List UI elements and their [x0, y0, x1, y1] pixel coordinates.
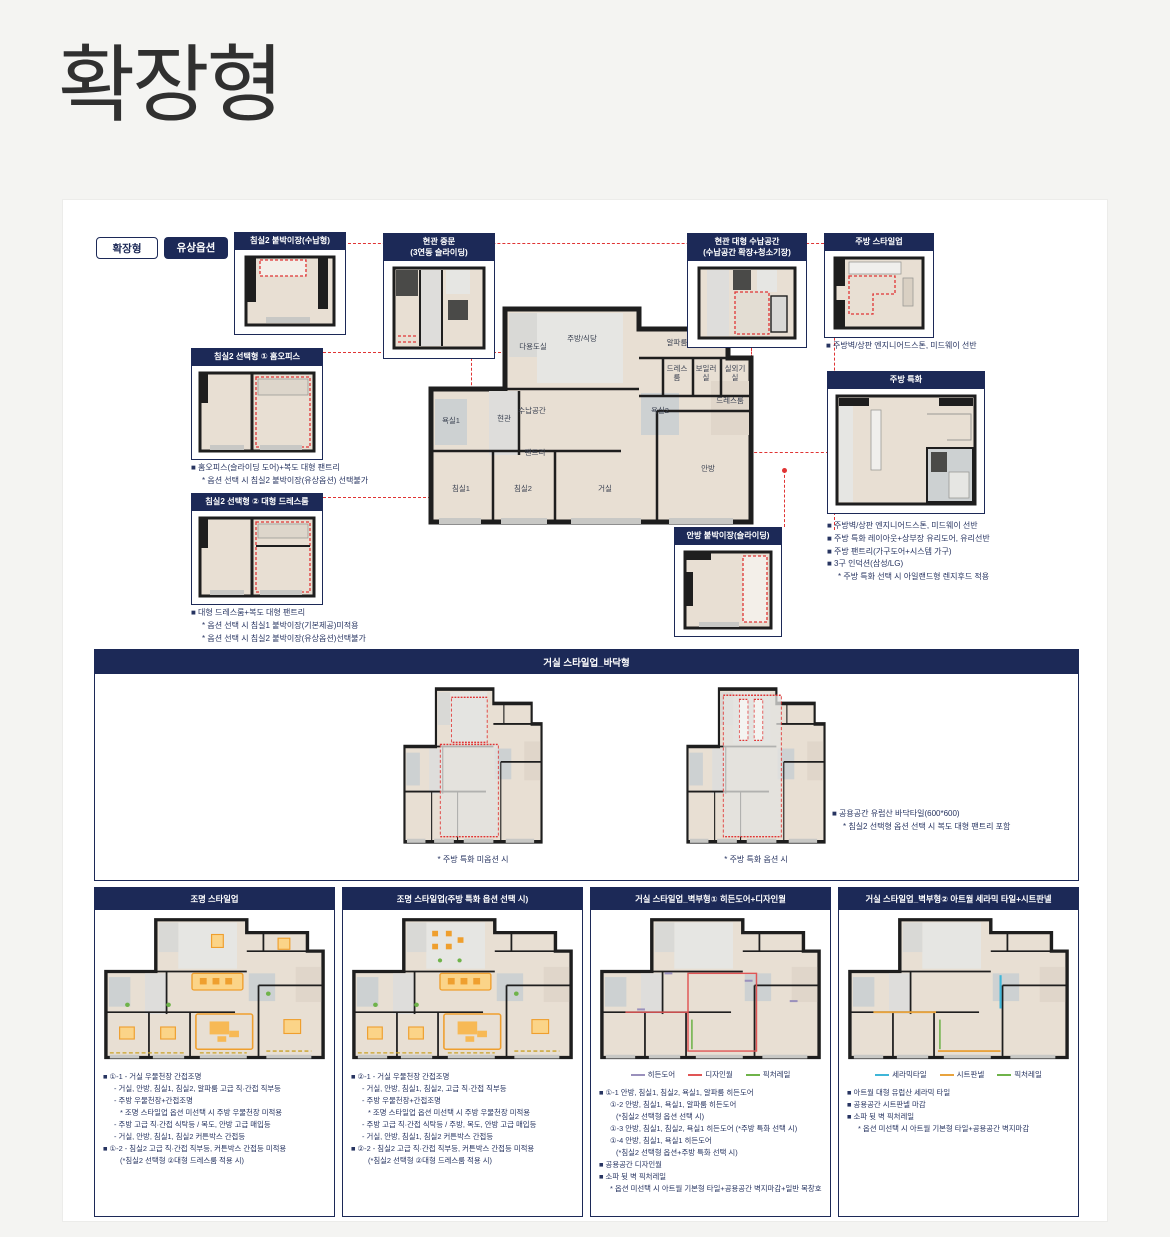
callout-kitchen-styleup: 주방 스타일업: [824, 233, 934, 338]
callout-title: 침실2 선택형 ① 홈오피스: [192, 349, 322, 366]
note-line: - 거실, 안방, 침실1, 침실2 커튼박스 간접등: [351, 1131, 574, 1143]
callout-entry-large-storage: 현관 대형 수납공간 (수납공간 확장+청소기장): [687, 233, 807, 348]
callout-notes: ■ 주방벽/상판 엔지니어드스톤, 미드웨이 선반: [826, 340, 1001, 353]
panel-notes: ■ 아트월 대형 유럽산 세라믹 타일 ■ 공용공간 시트판넬 마감 ■ 소파 …: [839, 1080, 1078, 1135]
note-line: ①-4 안방, 침실1, 욕실1 히든도어: [599, 1135, 822, 1147]
note-line: ①-3 안방, 침실1, 침실2, 욕실1 히든도어 (*주방 특화 선택 시): [599, 1123, 822, 1135]
floor-plan-thumbnail: [835, 394, 977, 506]
section-header: 거실 스타일업_바닥형: [95, 650, 1078, 674]
legend-item: 픽처레일: [746, 1069, 791, 1080]
callout-title: 현관 대형 수납공간 (수납공간 확장+청소기장): [688, 234, 806, 261]
callout-bed2-option2-dressroom: 침실2 선택형 ② 대형 드레스룸: [191, 493, 323, 605]
panel-header: 조명 스타일업: [95, 888, 334, 910]
note-line: ■ 공용공간 유럽산 바닥타일(600*600): [832, 808, 1072, 821]
note-line: ■ ①-2 - 침실2 고급 직·간접 직부등, 커튼박스 간접등 미적용: [103, 1143, 326, 1155]
note-line: - 거실, 안방, 침실1, 침실2, 알파룸 고급 직·간접 직부등: [103, 1083, 326, 1095]
floor-plan-thumbnail: [697, 266, 797, 340]
note-line: ■ 소파 뒷 벽 픽처레일: [847, 1111, 1070, 1123]
callout-title: 현관 중문 (3연동 슬라이딩): [384, 234, 494, 261]
legend-item: 세라믹타일: [875, 1069, 927, 1080]
callout-title: 침실2 붙박이장(수납형): [235, 233, 345, 250]
room-label-dress-top: 드레스룸: [664, 365, 690, 382]
floor-plan-graphic: [350, 916, 575, 1064]
floor-plan-thumbnail: [683, 550, 773, 630]
room-label-bath1: 욕실1: [435, 417, 467, 426]
note-line: ■ 홈오피스(슬라이딩 도어)+복도 대형 팬트리: [191, 462, 441, 475]
floor-plan-thumbnail: [198, 371, 316, 453]
note-line: ■ 주방 특화 레이아웃+상부장 유리도어, 유리선반: [827, 533, 1087, 546]
main-panel: 확장형 유상옵션 침실2 붙박이장(수납형): [62, 199, 1108, 1222]
floor-plan-no-option: [402, 685, 544, 854]
note-line: * 옵션 미선택 시 아트월 기본형 타일+공용공간 벽지마감: [847, 1123, 1070, 1135]
floor-plan-with-option: [685, 685, 827, 854]
panel-header: 거실 스타일업_벽부형① 히든도어+디자인월: [591, 888, 830, 910]
note-line: ■ 아트월 대형 유럽산 세라믹 타일: [847, 1087, 1070, 1099]
note-line: ■ ②-2 - 침실2 고급 직·간접 직부등, 커튼박스 간접등 미적용: [351, 1143, 574, 1155]
legend-label: 히든도어: [648, 1070, 676, 1079]
floor-plan-thumbnail: [244, 255, 336, 327]
badge-extended-type: 확장형: [96, 237, 158, 259]
panel-lighting-styleup-kitchen-special: 조명 스타일업(주방 특화 옵션 선택 시): [342, 887, 583, 1217]
room-label-pantry: 팬트리: [517, 449, 553, 458]
callout-title-line1: 현관 중문: [385, 237, 493, 248]
note-line: (*침실2 선택형 옵션+주방 특화 선택 시): [599, 1147, 822, 1159]
note-line: ■ ②-1 - 거실 우물천장 간접조명: [351, 1071, 574, 1083]
room-label-living: 거실: [580, 485, 630, 494]
note-line: - 주방 고급 직·간접 식탁등 / 복도, 안방 고급 매입등: [103, 1119, 326, 1131]
legend-label: 픽처레일: [763, 1070, 791, 1079]
note-line: * 옵션 선택 시 침실2 붙박이장(유상옵션) 선택불가: [191, 475, 441, 488]
legend-swatch-picture-rail: [746, 1074, 760, 1076]
note-line: * 주방 특화 선택 시 아일랜드형 렌지후드 적용: [827, 571, 1087, 584]
note-line: ■ 공용공간 디자인월: [599, 1159, 822, 1171]
callout-title: 안방 붙박이장(슬라이딩): [675, 528, 781, 545]
callout-master-builtin-closet: 안방 붙박이장(슬라이딩): [674, 527, 782, 637]
note-line: ■ 공용공간 시트판넬 마감: [847, 1099, 1070, 1111]
panel-wall-type1-hidden-door-designwall: 거실 스타일업_벽부형① 히든도어+디자인월 히든도어: [590, 887, 831, 1217]
legend-swatch-hidden-door: [631, 1074, 645, 1076]
note-line: - 주방 우물천장+간접조명: [103, 1095, 326, 1107]
legend-item: 디자인월: [688, 1069, 733, 1080]
room-label-storage: 수납공간: [517, 407, 547, 416]
panel-lighting-styleup: 조명 스타일업: [94, 887, 335, 1217]
legend-label: 세라믹타일: [892, 1070, 927, 1079]
note-line: (*침실2 선택형 ②대형 드레스룸 적용 시): [351, 1155, 574, 1167]
page-title: 확장형: [58, 18, 281, 139]
note-line: * 옵션 선택 시 침실2 붙박이장(유상옵션)선택불가: [191, 633, 451, 646]
brochure-page: 확장형: [0, 0, 1170, 1237]
section-living-floor-styleup: 거실 스타일업_바닥형 * 주방 특화 미옵션 시: [94, 649, 1079, 881]
callout-title-line2: (수납공간 확장+청소기장): [689, 248, 805, 259]
panel-notes: ■ ①-1 - 거실 우물천장 간접조명 - 거실, 안방, 침실1, 침실2,…: [95, 1064, 334, 1167]
callout-title-line1: 현관 대형 수납공간: [689, 237, 805, 248]
note-line: - 거실, 안방, 침실1, 침실2, 고급 직·간접 직부등: [351, 1083, 574, 1095]
callout-title: 침실2 선택형 ② 대형 드레스룸: [192, 494, 322, 511]
room-label-bed1: 침실1: [441, 485, 481, 494]
note-line: - 거실, 안방, 침실1, 침실2 커튼박스 간접등: [103, 1131, 326, 1143]
callout-notes: ■ 대형 드레스룸+복도 대형 팬트리 * 옵션 선택 시 침실1 붙박이장(기…: [191, 607, 451, 645]
callout-notes: ■ 주방벽/상판 엔지니어드스톤, 미드웨이 선반 ■ 주방 특화 레이아웃+상…: [827, 520, 1087, 584]
callout-title: 주방 특화: [828, 372, 984, 389]
note-line: ■ 주방벽/상판 엔지니어드스톤, 미드웨이 선반: [827, 520, 1087, 533]
legend-label: 디자인월: [705, 1070, 733, 1079]
room-label-boiler: 보일러실: [693, 365, 719, 382]
note-line: * 조명 스타일업 옵션 미선택 시 주방 우물천장 미적용: [351, 1107, 574, 1119]
room-label-bed2: 침실2: [503, 485, 543, 494]
note-line: - 주방 고급 직·간접 식탁등 / 주방, 복도, 안방 고급 매입등: [351, 1119, 574, 1131]
panel-header: 거실 스타일업_벽부형② 아트월 세라믹 타일+시트판넬: [839, 888, 1078, 910]
legend-swatch-sheet-panel: [940, 1074, 954, 1076]
note-line: ■ ①-1 - 거실 우물천장 간접조명: [103, 1071, 326, 1083]
note-line: ■ 소파 뒷 벽 픽처레일: [599, 1171, 822, 1183]
note-line: ■ 주방 팬트리(가구도어+시스템 가구): [827, 546, 1087, 559]
floor-plan-graphic: [685, 685, 827, 849]
legend-label: 픽처레일: [1014, 1070, 1042, 1079]
room-label-bath2: 욕실2: [643, 407, 677, 416]
floor-plan-graphic: [102, 916, 327, 1064]
callout-kitchen-special: 주방 특화: [827, 371, 985, 514]
panel-notes: ■ ①-1 안방, 침실1, 침실2, 욕실1, 알파룸 히든도어 ①-2 안방…: [591, 1080, 830, 1195]
legend-swatch-design-wall: [688, 1074, 702, 1076]
note-line: ①-2 안방, 침실1, 욕실1, 알파룸 히든도어: [599, 1099, 822, 1111]
note-line: * 침실2 선택형 옵션 선택 시 복도 대형 팬트리 포함: [832, 821, 1072, 834]
legend-item: 픽처레일: [997, 1069, 1042, 1080]
callout-notes: ■ 홈오피스(슬라이딩 도어)+복도 대형 팬트리 * 옵션 선택 시 침실2 …: [191, 462, 441, 488]
room-label-ac-room: 실외기실: [722, 365, 748, 382]
legend-label: 시트판넬: [957, 1070, 985, 1079]
note-line: ■ 주방벽/상판 엔지니어드스톤, 미드웨이 선반: [826, 340, 1001, 353]
floor-plan-thumbnail: [833, 256, 925, 330]
note-line: ■ 대형 드레스룸+복도 대형 팬트리: [191, 607, 451, 620]
floor-plan-graphic: [846, 916, 1071, 1064]
note-line: * 조명 스타일업 옵션 미선택 시 주방 우물천장 미적용: [103, 1107, 326, 1119]
note-line: ■ ①-1 안방, 침실1, 침실2, 욕실1, 알파룸 히든도어: [599, 1087, 822, 1099]
room-label-entry: 현관: [487, 415, 521, 424]
panel-notes: ■ ②-1 - 거실 우물천장 간접조명 - 거실, 안방, 침실1, 침실2,…: [343, 1064, 582, 1167]
callout-bed2-option1-homeoffice: 침실2 선택형 ① 홈오피스: [191, 348, 323, 460]
note-line: ■ 3구 인덕션(삼성/LG): [827, 558, 1087, 571]
note-line: (*침실2 선택형 옵션 선택 시): [599, 1111, 822, 1123]
floor-plan-graphic: [402, 685, 544, 849]
legend-item: 시트판넬: [940, 1069, 985, 1080]
callout-title-line2: (3연동 슬라이딩): [385, 248, 493, 259]
callout-bed2-builtin-closet: 침실2 붙박이장(수납형): [234, 232, 346, 335]
room-label-dress-right: 드레스룸: [715, 397, 745, 406]
floor-plan-thumbnail: [198, 516, 316, 598]
note-line: (*침실2 선택형 ②대형 드레스룸 적용 시): [103, 1155, 326, 1167]
panel-legend: 세라믹타일 시트판넬 픽처레일: [839, 1069, 1078, 1080]
floor-plan-graphic: [598, 916, 823, 1064]
legend-swatch-ceramic-tile: [875, 1074, 889, 1076]
room-label-utility: 다용도실: [503, 343, 563, 352]
note-line: * 옵션 미선택 시 아트월 기본형 타일+공용공간 벽지마감+일반 목창호: [599, 1183, 822, 1195]
plan-caption-right: * 주방 특화 옵션 시: [685, 854, 827, 865]
legend-item: 히든도어: [631, 1069, 676, 1080]
plan-caption-left: * 주방 특화 미옵션 시: [402, 854, 544, 865]
section-notes: ■ 공용공간 유럽산 바닥타일(600*600) * 침실2 선택형 옵션 선택…: [832, 808, 1072, 834]
note-line: - 주방 우물천장+간접조명: [351, 1095, 574, 1107]
note-line: * 옵션 선택 시 침실1 붙박이장(기본제공)미적용: [191, 620, 451, 633]
panel-legend: 히든도어 디자인월 픽처레일: [591, 1069, 830, 1080]
panel-header: 조명 스타일업(주방 특화 옵션 선택 시): [343, 888, 582, 910]
badge-paid-option: 유상옵션: [164, 237, 228, 259]
callout-title: 주방 스타일업: [825, 234, 933, 251]
room-label-kitchen: 주방/식당: [547, 335, 617, 344]
legend-swatch-picture-rail: [997, 1074, 1011, 1076]
room-label-master: 안방: [683, 465, 733, 474]
panel-wall-type2-ceramic-tile-sheet-panel: 거실 스타일업_벽부형② 아트월 세라믹 타일+시트판넬 세라믹타일 시트판넬 …: [838, 887, 1079, 1217]
